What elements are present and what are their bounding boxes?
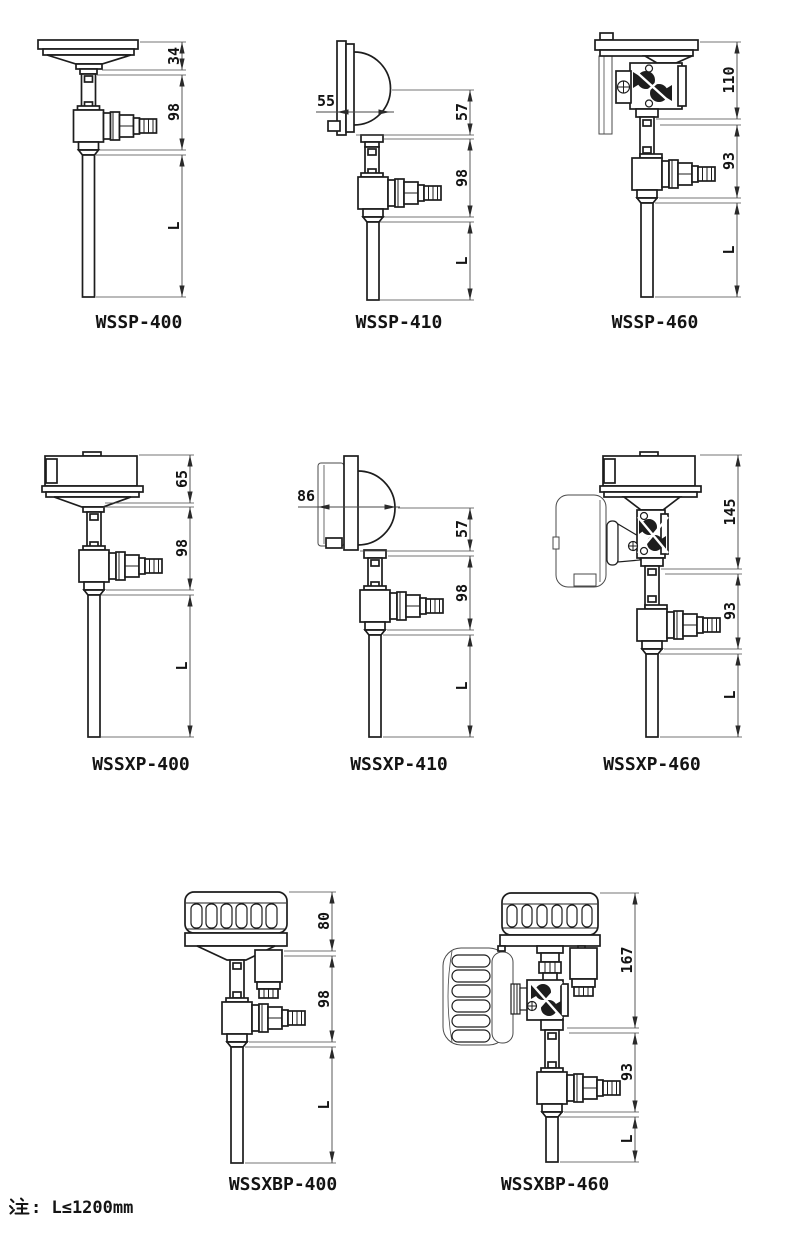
figure-label: WSSXP-460	[603, 754, 701, 775]
figure-wssxp-400: 65 98 L WSSXP-400	[42, 452, 194, 775]
union-connector	[104, 112, 157, 140]
probe	[641, 203, 653, 297]
dimension-value: L	[453, 256, 471, 265]
thermometer-drawing	[553, 452, 720, 737]
figure-label: WSSXBP-460	[501, 1174, 609, 1195]
union-connector	[390, 592, 443, 620]
lock-nut	[363, 209, 383, 222]
stem	[645, 566, 659, 609]
union-connector	[667, 611, 720, 639]
lock-nut	[84, 582, 104, 595]
bracket-plate	[599, 56, 612, 134]
thermometer-drawing	[328, 41, 441, 300]
note-prefix-glyph	[10, 1199, 29, 1214]
dimension-value: L	[721, 690, 739, 699]
dimensions: 34 98 L	[96, 42, 186, 297]
dimension-value: 65	[173, 470, 191, 488]
hex-fitting	[537, 1068, 567, 1104]
stem	[230, 960, 244, 1002]
dimension-value: 86	[297, 487, 315, 505]
probe	[646, 654, 658, 737]
thermometer-drawing	[595, 33, 715, 297]
stem	[545, 1030, 559, 1072]
thermometer-drawing	[38, 40, 157, 297]
dial-side-view	[318, 456, 395, 550]
lock-nut	[227, 1034, 247, 1047]
dimension-value: 93	[618, 1063, 636, 1081]
union-connector	[388, 179, 441, 207]
lock-nut	[542, 1104, 562, 1117]
union-connector	[567, 1074, 620, 1102]
drawing-sheet: 34 98 L WSSP-400	[0, 0, 790, 1234]
dimension-value: L	[453, 681, 471, 690]
dimension-value: 93	[720, 152, 738, 170]
figure-label: WSSXP-410	[350, 754, 448, 775]
hex-fitting	[222, 998, 252, 1034]
dimension-value: 34	[165, 47, 183, 65]
dimension-value: 110	[720, 66, 738, 93]
union-connector	[662, 160, 715, 188]
thermometer-drawing	[318, 456, 443, 737]
dimension-value: L	[720, 245, 738, 254]
figure-label: WSSXP-400	[92, 754, 190, 775]
hex-fitting	[360, 586, 390, 622]
dimension-value: L	[173, 661, 191, 670]
dial-housing-side	[443, 948, 528, 1045]
universal-joint	[527, 980, 568, 1020]
probe	[546, 1117, 558, 1162]
thermometer-drawing	[443, 893, 620, 1162]
dimension-value: 98	[173, 539, 191, 557]
dial-back-view	[553, 495, 640, 587]
joint-nut	[641, 558, 663, 566]
hex-fitting	[358, 173, 388, 209]
dimension-value: 98	[453, 169, 471, 187]
probe	[83, 155, 95, 297]
dimension-value: 93	[721, 602, 739, 620]
terminal-box	[600, 452, 701, 510]
cable-entry	[570, 948, 597, 996]
union-connector	[109, 552, 162, 580]
probe	[88, 595, 100, 737]
swivel-stem	[537, 946, 563, 982]
explosion-proof-cap	[498, 893, 600, 951]
hex-fitting	[74, 106, 104, 142]
dimension-value: L	[618, 1134, 636, 1143]
stem	[640, 117, 654, 158]
dimension-value: 98	[165, 103, 183, 121]
figure-wssp-460: 110 93 L WSSP-460	[595, 33, 741, 333]
dimension-value: L	[315, 1100, 333, 1109]
stem	[87, 512, 101, 550]
dimension-value: 80	[315, 912, 333, 930]
dimension-value: 57	[453, 520, 471, 538]
hex-fitting	[637, 605, 667, 641]
dimension-value: 145	[721, 498, 739, 525]
thermometer-drawing	[42, 452, 162, 737]
figure-wssp-400: 34 98 L WSSP-400	[38, 40, 186, 333]
thermometer-drawing	[185, 892, 305, 1163]
hex-fitting	[79, 546, 109, 582]
dimension-value: L	[165, 221, 183, 230]
joint-nut	[541, 1020, 563, 1030]
stem	[82, 74, 96, 110]
dial-neck	[361, 135, 383, 142]
figure-label: WSSP-400	[96, 312, 183, 333]
note: : L≤1200mm	[10, 1198, 133, 1218]
joint-nut	[636, 109, 658, 117]
figure-wssxp-460: 145 93 L WSSXP-460	[553, 452, 742, 775]
lock-nut	[642, 641, 662, 654]
lock-nut	[79, 142, 99, 155]
hex-fitting	[632, 154, 662, 190]
figure-wssxbp-460: 167 93 L WSSXBP-460	[443, 893, 639, 1195]
figure-label: WSSXBP-400	[229, 1174, 337, 1195]
universal-joint	[616, 63, 686, 109]
figure-wssxp-410: 86 57 98 L WSSXP-410	[297, 456, 474, 775]
dial-edge-view	[38, 40, 138, 74]
dimension-value: 98	[453, 584, 471, 602]
figure-wssxbp-400: 80 98 L WSSXBP-400	[185, 892, 337, 1195]
dimension-value: 55	[317, 92, 335, 110]
union-connector	[252, 1004, 305, 1032]
cable-entry	[255, 950, 282, 998]
figure-wssp-410: 55 57 98 L WSSP-410	[316, 41, 474, 333]
figure-label: WSSP-460	[612, 312, 699, 333]
lock-nut	[365, 622, 385, 635]
technical-drawing-canvas: 34 98 L WSSP-400	[0, 0, 790, 1234]
dimension-value: 57	[453, 103, 471, 121]
figure-label: WSSP-410	[356, 312, 443, 333]
probe	[231, 1047, 243, 1163]
probe	[367, 222, 379, 300]
lock-nut	[637, 190, 657, 203]
dial-side-view	[328, 41, 391, 135]
note-text: : L≤1200mm	[31, 1198, 133, 1218]
dimension-value: 98	[315, 990, 333, 1008]
probe	[369, 635, 381, 737]
dimension-value: 167	[618, 946, 636, 973]
